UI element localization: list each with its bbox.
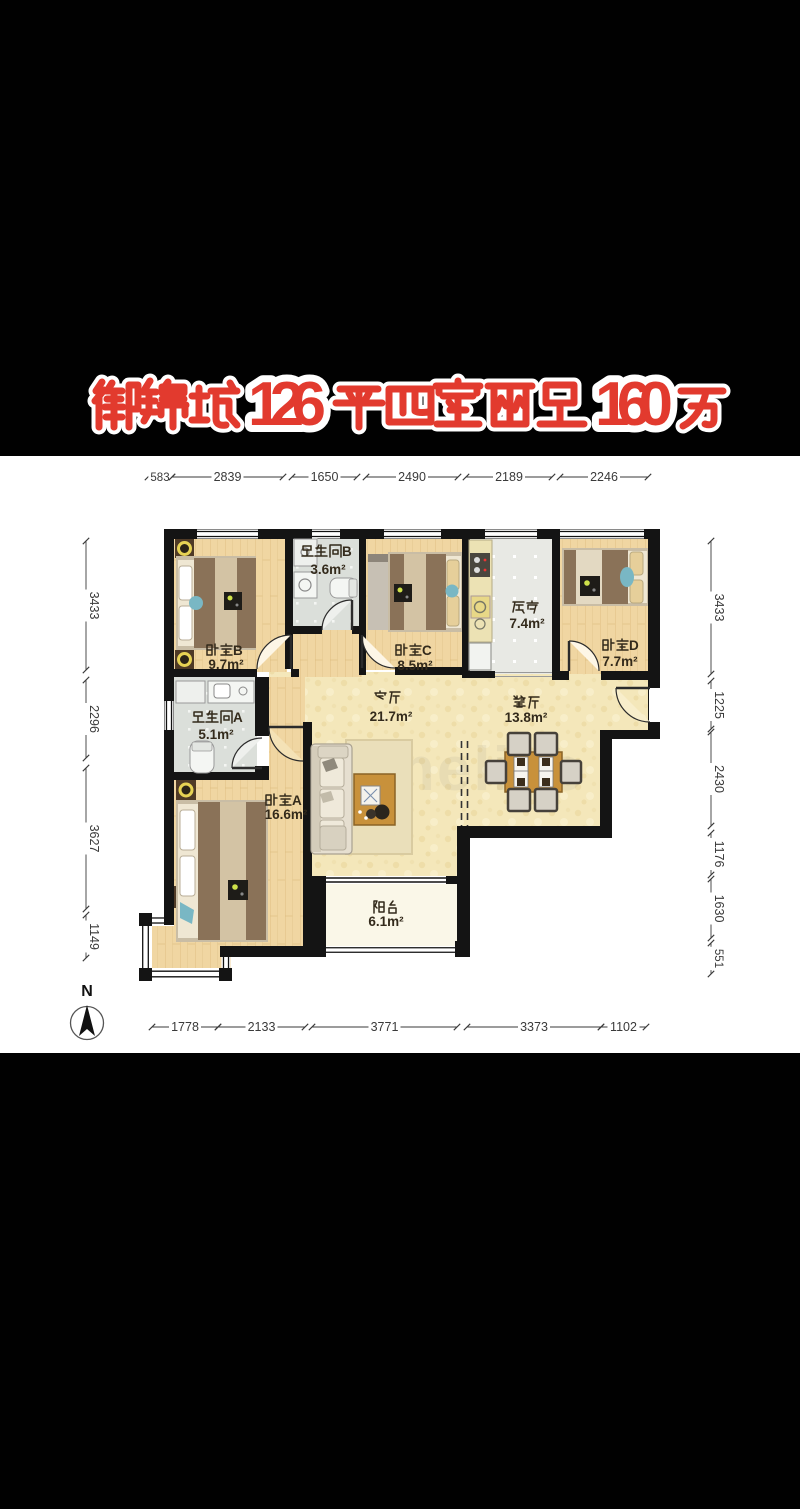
svg-text:3771: 3771	[371, 1020, 399, 1034]
svg-text:8.5m²: 8.5m²	[397, 658, 433, 673]
svg-text:3373: 3373	[520, 1020, 548, 1034]
svg-text:13.8m²: 13.8m²	[505, 710, 548, 725]
svg-text:N: N	[81, 983, 93, 1000]
svg-text:160: 160	[595, 370, 673, 439]
svg-text:3627: 3627	[87, 825, 101, 853]
svg-text:3.6m²: 3.6m²	[310, 562, 346, 577]
svg-text:1149: 1149	[87, 923, 101, 950]
svg-text:2839: 2839	[214, 470, 242, 484]
svg-text:1778: 1778	[171, 1020, 199, 1034]
svg-text:126: 126	[248, 370, 326, 439]
svg-text:3433: 3433	[712, 594, 726, 622]
svg-text:2490: 2490	[398, 470, 426, 484]
svg-text:551: 551	[712, 949, 724, 968]
svg-text:3433: 3433	[87, 592, 101, 620]
svg-text:16.6m²: 16.6m²	[265, 807, 308, 822]
svg-text:1102: 1102	[610, 1020, 637, 1034]
svg-text:A: A	[233, 710, 243, 725]
svg-text:1630: 1630	[712, 895, 726, 923]
svg-text:2246: 2246	[590, 470, 618, 484]
svg-text:21.7m²: 21.7m²	[370, 709, 413, 724]
svg-text:6.1m²: 6.1m²	[368, 914, 404, 929]
svg-text:7.7m²: 7.7m²	[602, 654, 638, 669]
svg-text:B: B	[233, 643, 243, 658]
svg-text:1176: 1176	[712, 841, 726, 868]
svg-text:5.1m²: 5.1m²	[198, 727, 234, 742]
svg-text:9.7m²: 9.7m²	[208, 657, 244, 672]
svg-text:7.4m²: 7.4m²	[509, 616, 545, 631]
svg-text:1225: 1225	[712, 691, 726, 719]
svg-text:2296: 2296	[87, 705, 101, 733]
svg-text:2133: 2133	[248, 1020, 276, 1034]
svg-text:A: A	[292, 793, 302, 808]
svg-text:2189: 2189	[495, 470, 523, 484]
svg-text:1650: 1650	[311, 470, 339, 484]
svg-text:D: D	[629, 638, 639, 653]
svg-text:B: B	[342, 544, 352, 559]
svg-text:C: C	[422, 643, 432, 658]
svg-text:2430: 2430	[712, 765, 726, 793]
svg-text:583: 583	[150, 472, 169, 484]
